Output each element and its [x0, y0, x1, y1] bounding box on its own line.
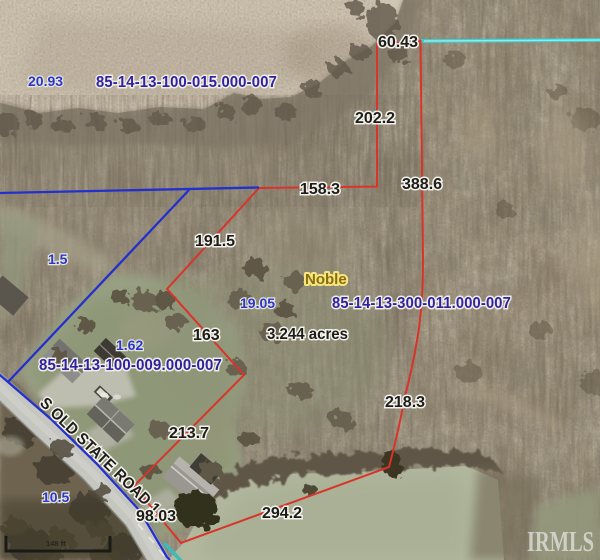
svg-text:213.7: 213.7: [169, 425, 209, 442]
svg-text:218.3: 218.3: [385, 394, 425, 411]
svg-text:3.244 acres: 3.244 acres: [267, 326, 348, 343]
svg-text:19.05: 19.05: [240, 295, 275, 311]
svg-text:388.6: 388.6: [402, 176, 442, 193]
svg-text:98.03: 98.03: [136, 508, 176, 525]
svg-text:60.43: 60.43: [378, 34, 418, 51]
svg-text:158.3: 158.3: [300, 181, 340, 198]
svg-text:191.5: 191.5: [195, 233, 235, 250]
svg-text:85-14-13-300-011.000-007: 85-14-13-300-011.000-007: [332, 295, 511, 312]
svg-text:1.5: 1.5: [48, 251, 68, 267]
svg-text:85-14-13-100-015.000-007: 85-14-13-100-015.000-007: [96, 74, 277, 91]
svg-text:85-14-13-100-009.000-007: 85-14-13-100-009.000-007: [39, 357, 222, 374]
svg-text:Noble: Noble: [305, 271, 347, 288]
svg-text:294.2: 294.2: [262, 505, 302, 522]
svg-text:10.5: 10.5: [42, 489, 69, 505]
svg-text:202.2: 202.2: [355, 110, 395, 127]
svg-text:20.93: 20.93: [28, 73, 63, 89]
svg-text:148 ft: 148 ft: [46, 539, 66, 548]
svg-text:1.62: 1.62: [116, 337, 143, 353]
svg-text:163: 163: [193, 327, 220, 344]
svg-text:IRMLS: IRMLS: [527, 527, 594, 558]
